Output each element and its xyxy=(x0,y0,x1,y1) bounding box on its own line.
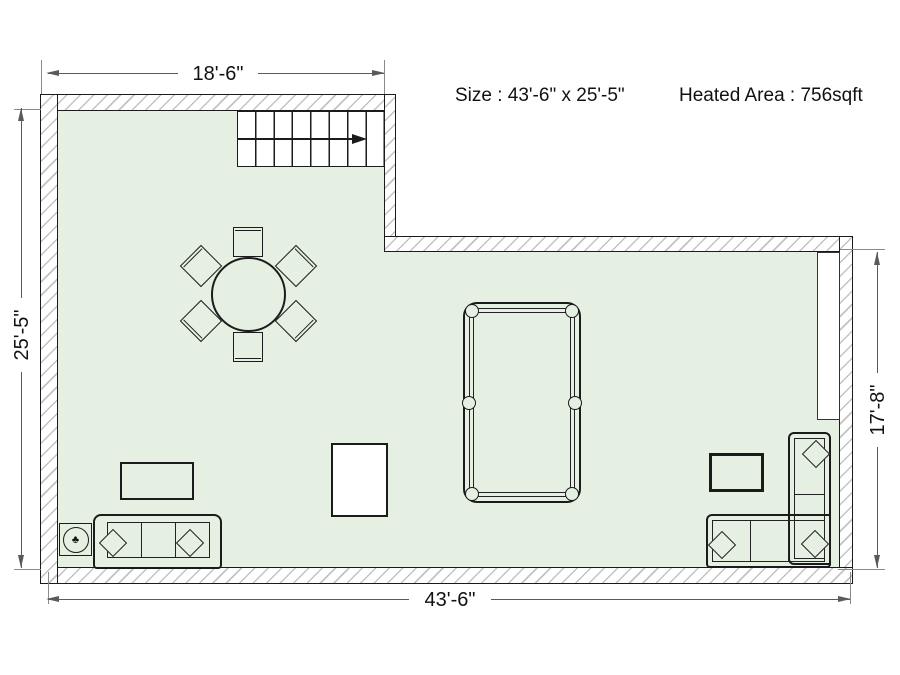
tv-cabinet xyxy=(709,453,764,492)
dimension-label-left: 25'-5" xyxy=(11,298,33,372)
dimension-arrow-icon xyxy=(18,108,24,121)
extension-line xyxy=(14,569,41,570)
stairs-direction-arrow-icon xyxy=(352,134,367,144)
stairs-run-line xyxy=(238,138,354,140)
pool-pocket-mid-left xyxy=(462,396,476,410)
dimension-arrow-icon xyxy=(46,70,59,76)
wall-right xyxy=(839,236,853,584)
dimension-arrow-icon xyxy=(46,596,59,602)
sofa-seat-divider xyxy=(141,523,142,557)
dining-chair-bottom xyxy=(233,332,263,362)
dimension-label-bottom: 43'-6" xyxy=(409,589,491,611)
dimension-arrow-icon xyxy=(838,596,851,602)
wall-step xyxy=(384,94,396,252)
closet-recess xyxy=(817,252,840,420)
wall-bottom xyxy=(40,567,853,584)
pool-pocket-top-left xyxy=(465,304,479,318)
pool-pocket-bottom-right xyxy=(565,487,579,501)
size-label: Size : 43'-6" x 25'-5" xyxy=(455,85,625,107)
extension-line xyxy=(41,60,42,94)
plant-icon: ♣ xyxy=(63,527,89,553)
pool-pocket-mid-right xyxy=(568,396,582,410)
dimension-arrow-icon xyxy=(874,555,880,568)
side-table: ♣ xyxy=(59,523,92,556)
dimension-arrow-icon xyxy=(372,70,385,76)
wall-top-right xyxy=(384,236,853,252)
heated-area-label: Heated Area : 756sqft xyxy=(679,85,863,107)
sectional-seat-divider xyxy=(750,521,751,561)
storage-box xyxy=(331,443,388,517)
wall-left xyxy=(40,94,58,584)
extension-line xyxy=(838,569,885,570)
sectional-seat-divider xyxy=(788,521,789,561)
dining-chair-top xyxy=(233,227,263,257)
coffee-table xyxy=(120,462,194,500)
extension-line xyxy=(384,60,385,94)
dimension-arrow-icon xyxy=(18,555,24,568)
pool-table xyxy=(463,302,581,503)
pool-table-rail-inner xyxy=(473,312,571,493)
pool-pocket-bottom-left xyxy=(465,487,479,501)
dimension-arrow-icon xyxy=(874,252,880,265)
extension-line xyxy=(840,249,885,250)
dimension-label-right: 17'-8" xyxy=(867,373,889,447)
sofa-seat-divider xyxy=(175,523,176,557)
dimension-label-top: 18'-6" xyxy=(178,63,258,85)
floor-plan-canvas: Size : 43'-6" x 25'-5" Heated Area : 756… xyxy=(0,0,900,675)
sectional-seat-divider xyxy=(795,494,825,495)
pool-pocket-top-right xyxy=(565,304,579,318)
wall-top-left xyxy=(40,94,396,111)
